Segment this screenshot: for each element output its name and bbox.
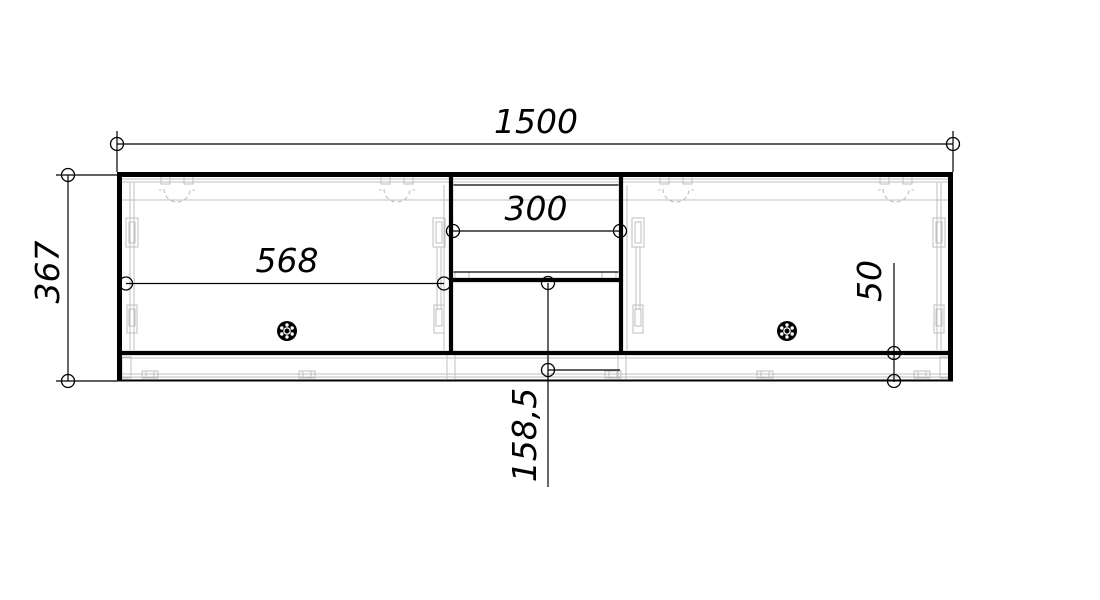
plinth-corner-connector bbox=[122, 357, 131, 378]
dim-label-lower-middle-height: 158,5 bbox=[505, 388, 544, 482]
door-bracket-icon bbox=[933, 218, 945, 333]
plinth-corner-connector bbox=[940, 357, 949, 378]
dim-middle-width: 300 bbox=[447, 189, 627, 238]
dim-label-middle-width: 300 bbox=[505, 189, 568, 228]
dim-label-overall-width: 1500 bbox=[494, 102, 578, 141]
hinge-cup-icon bbox=[159, 176, 195, 202]
knob-icon bbox=[777, 321, 797, 341]
door-bracket-icon bbox=[433, 218, 445, 333]
dim-plinth-height: 50 bbox=[850, 260, 901, 388]
dim-label-plinth-height: 50 bbox=[850, 260, 889, 302]
drawing-page: 1500 367 568 300 158,5 50 bbox=[0, 0, 1100, 600]
dim-overall-width: 1500 bbox=[111, 102, 960, 172]
dim-overall-height: 367 bbox=[28, 169, 117, 388]
dim-left-door-width: 568 bbox=[120, 241, 451, 290]
hinge-cup-icon bbox=[658, 176, 694, 202]
door-bracket-icon bbox=[126, 218, 138, 333]
door-bracket-icon bbox=[632, 218, 644, 333]
knob-icon bbox=[277, 321, 297, 341]
dim-label-left-door-width: 568 bbox=[256, 241, 319, 280]
dim-lower-middle-height: 158,5 bbox=[505, 277, 620, 488]
dim-label-overall-height: 367 bbox=[28, 241, 67, 304]
technical-drawing-canvas: 1500 367 568 300 158,5 50 bbox=[0, 0, 1100, 600]
hinge-cup-icon bbox=[379, 176, 415, 202]
hinge-cup-icon bbox=[878, 176, 914, 202]
